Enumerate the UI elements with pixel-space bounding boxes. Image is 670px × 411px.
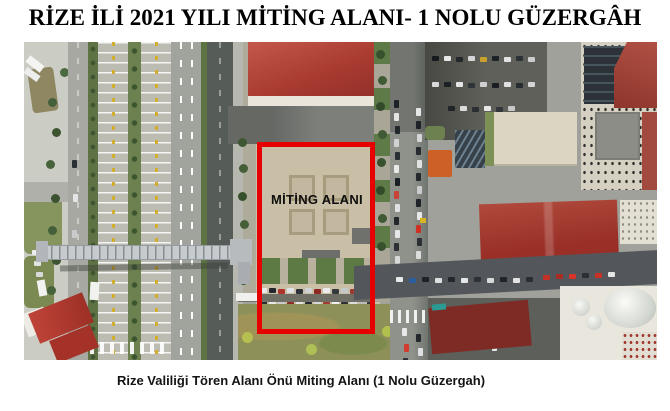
trees-left-column	[48, 98, 57, 107]
mosque-dome-small	[572, 298, 590, 316]
glass-building	[455, 130, 485, 168]
bridge-left-landing	[36, 241, 48, 262]
median-green-strip	[128, 42, 141, 360]
lime-trees	[242, 332, 253, 343]
side-road-horizontal	[24, 182, 72, 202]
main-road-lanes	[171, 42, 201, 360]
lane-marking	[219, 42, 221, 360]
yellow-markings	[155, 42, 158, 360]
teal-roof-accent	[432, 303, 446, 310]
cars-service-road	[72, 160, 77, 168]
parked-car-column	[394, 100, 399, 108]
parked-car-column	[402, 328, 407, 336]
roof-garden-strip	[485, 112, 494, 166]
orange-canopy	[428, 150, 452, 177]
parked-car-column	[416, 108, 421, 116]
page-title: RİZE İLİ 2021 YILI MİTİNG ALANI- 1 NOLU …	[0, 5, 670, 31]
parked-car-row	[448, 106, 455, 111]
traffic-car-row	[396, 277, 403, 282]
government-building-roof	[248, 42, 374, 96]
parked-car-row	[432, 56, 439, 61]
document-page: RİZE İLİ 2021 YILI MİTİNG ALANI- 1 NOLU …	[0, 0, 670, 411]
figure-caption: Rize Valiliği Tören Alanı Önü Miting Ala…	[0, 373, 602, 388]
white-building-right	[620, 200, 657, 244]
trees-plaza-left	[238, 138, 247, 147]
cream-building	[485, 112, 577, 166]
courtyard-shadow	[228, 106, 378, 144]
lane-marking	[180, 42, 182, 360]
rally-area-annotation	[257, 142, 375, 334]
bridge-right-stairs	[238, 262, 250, 284]
lane-marking	[191, 42, 193, 360]
white-bus	[236, 293, 257, 301]
red-roof-strip	[642, 112, 657, 190]
street-shadow	[390, 42, 428, 132]
white-truck	[90, 282, 100, 300]
trees-street-hedge	[376, 50, 385, 59]
building-bottom-right	[622, 332, 657, 360]
rally-area-label: MİTİNG ALANI	[262, 192, 372, 207]
crosswalk	[390, 310, 428, 323]
taxi-sign-marker	[420, 218, 426, 223]
mosque-dome-small	[586, 314, 602, 330]
aerial-photo: MİTİNG ALANI	[24, 42, 657, 360]
pedestrian-bridge-deck	[42, 245, 232, 260]
green-patch	[425, 126, 445, 140]
parked-car-row	[432, 82, 439, 87]
yellow-markings	[112, 42, 115, 360]
crosswalk	[90, 342, 170, 354]
gray-roof-block	[595, 112, 640, 160]
mosque-dome-large	[604, 288, 656, 328]
hedge-column-right	[374, 42, 390, 302]
